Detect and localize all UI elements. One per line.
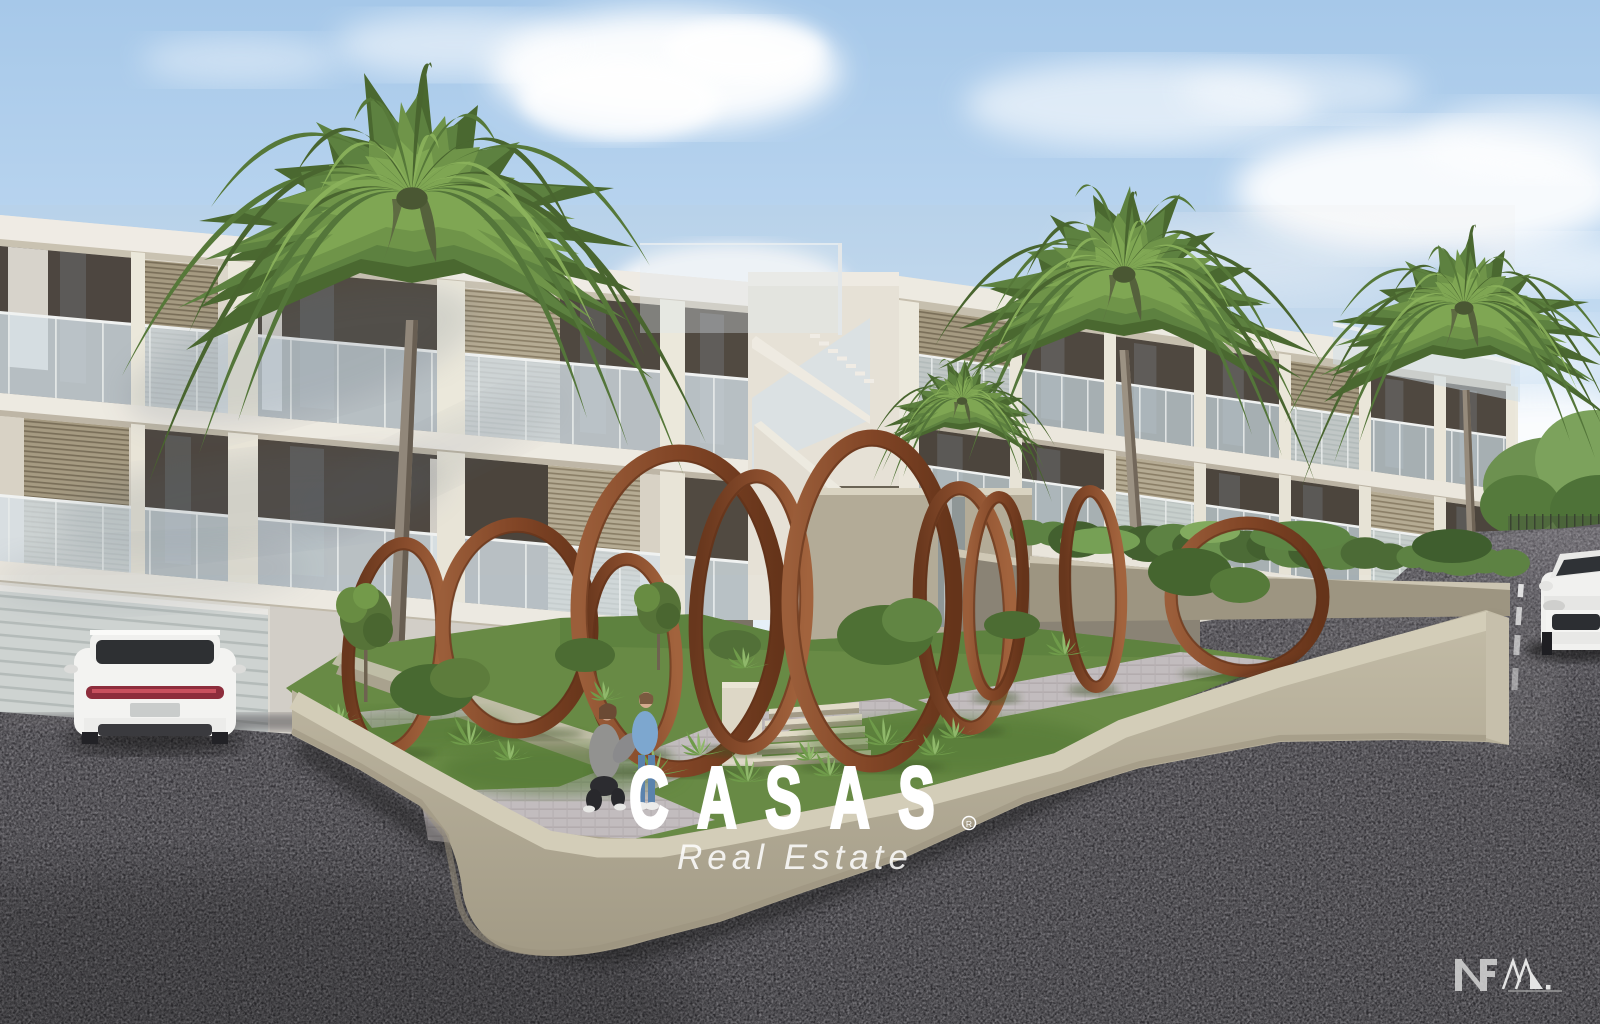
svg-text:Real Estate: Real Estate	[677, 838, 913, 877]
svg-text:R: R	[966, 819, 972, 829]
svg-text:CASAS: CASAS	[629, 750, 963, 846]
